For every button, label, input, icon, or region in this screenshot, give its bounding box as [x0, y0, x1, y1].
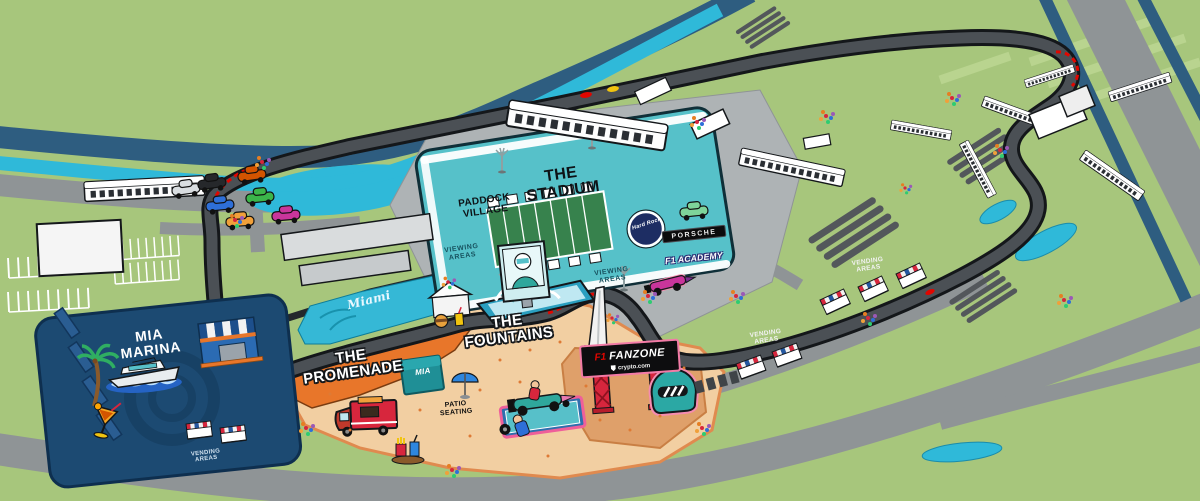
marina-building [196, 317, 263, 368]
circuit-map-illustration [0, 0, 1200, 501]
f1-logo: F1 [594, 352, 606, 364]
mia-marina-area [34, 293, 302, 488]
fanzone-name: FANZONE [609, 347, 666, 363]
crypto-logo-icon [611, 365, 616, 371]
fanzone-sign: F1FANZONE crypto.com [579, 339, 681, 378]
fanzone-sponsor: crypto.com [618, 363, 651, 371]
circuit-map: THE STADIUM PADDOCK VILLAGE VIEWING AREA… [0, 0, 1200, 501]
helmet-icon [650, 368, 698, 414]
